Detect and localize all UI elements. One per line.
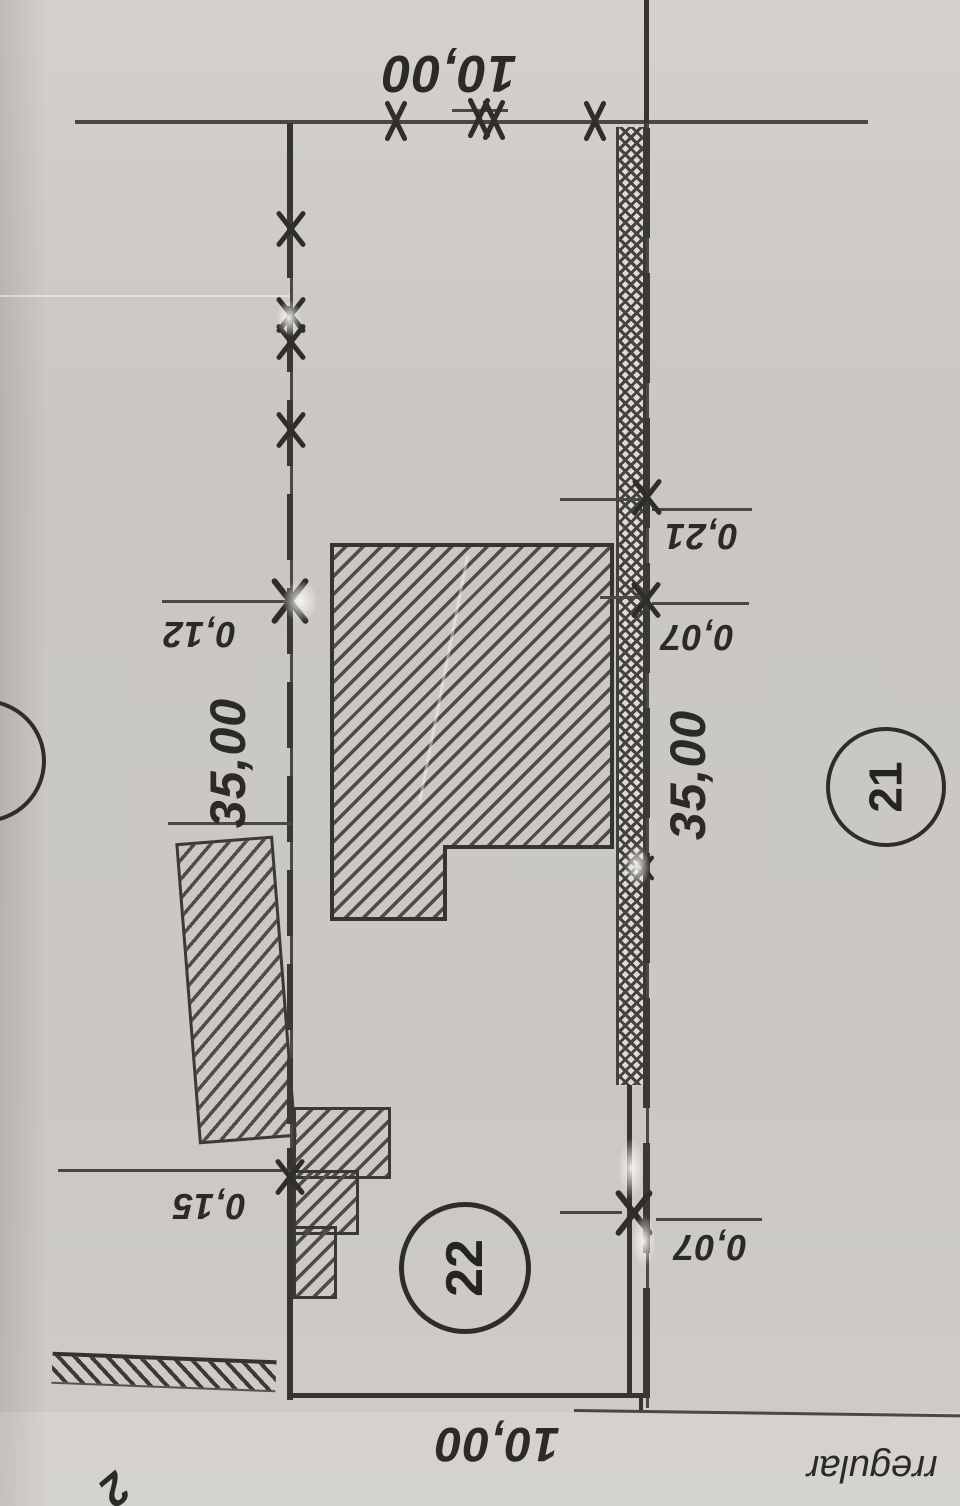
parcel-number-left-partial: 23	[0, 735, 7, 786]
bottom-text-irregular: rregular	[807, 1449, 938, 1487]
dim-line-007-upper-right	[652, 602, 749, 605]
central-building-edge-top	[330, 543, 614, 547]
cadastral-plan-scan: 10,00 0,12 0,21 0,07 35,00 35,00 0,15 0,…	[0, 0, 960, 1506]
dim-line-007-lower-right	[656, 1218, 762, 1221]
central-building	[332, 545, 613, 920]
parcel-number-22: 22	[439, 1239, 491, 1297]
parcel-circle-21: 21	[826, 727, 946, 847]
dim-label-offset-right-lower: 0,07	[673, 1229, 747, 1265]
dim-label-left-depth: 35,00	[203, 698, 253, 828]
paper-crease-horizontal	[0, 295, 292, 297]
dim-label-bottom-width: 10,00	[434, 1419, 559, 1467]
left-boundary-dashes	[287, 212, 293, 1148]
whiteout-smudge	[282, 580, 318, 622]
central-building-edge-bottom-left	[330, 917, 447, 921]
left-neighbour-building	[175, 836, 296, 1145]
dim-line-007-lower-left	[560, 1211, 622, 1214]
central-building-edge-left	[330, 543, 334, 921]
stepped-building-step-1	[293, 1107, 391, 1179]
whiteout-smudge	[632, 1215, 656, 1267]
dim-label-top-width: 10,00	[381, 47, 516, 99]
central-building-edge-right	[610, 543, 614, 849]
dim-label-offset-right-mid: 0,07	[660, 619, 734, 655]
bottom-left-fence-strip	[51, 1352, 276, 1393]
dim-line-012	[162, 600, 292, 603]
stepped-building-step-3	[293, 1226, 337, 1299]
whiteout-smudge	[618, 1138, 644, 1198]
dim-label-offset-left-upper: 0,12	[162, 616, 236, 652]
parcel-number-21: 21	[863, 761, 909, 812]
parcel-circle-22: 22	[399, 1202, 531, 1334]
whiteout-smudge	[624, 845, 650, 887]
left-boundary-bold-top	[287, 123, 293, 215]
top-boundary-line	[75, 120, 868, 124]
central-building-edge-step	[443, 845, 447, 921]
left-boundary-bold-bottom	[287, 1148, 293, 1400]
dim-label-offset-right-upper: 0,21	[664, 518, 738, 554]
central-building-edge-bottom-right	[443, 845, 614, 849]
dim-line-021-right	[652, 508, 752, 511]
dim-label-right-depth: 35,00	[663, 710, 713, 840]
right-boundary-upper-extension	[644, 0, 649, 127]
dim-label-offset-left-lower: 0,15	[172, 1188, 246, 1224]
dim-line-015	[58, 1169, 290, 1172]
whiteout-smudge	[276, 300, 302, 336]
right-boundary-dashes	[643, 128, 650, 1400]
dim-line-021-left	[560, 498, 646, 501]
bottom-boundary-line	[289, 1393, 643, 1398]
